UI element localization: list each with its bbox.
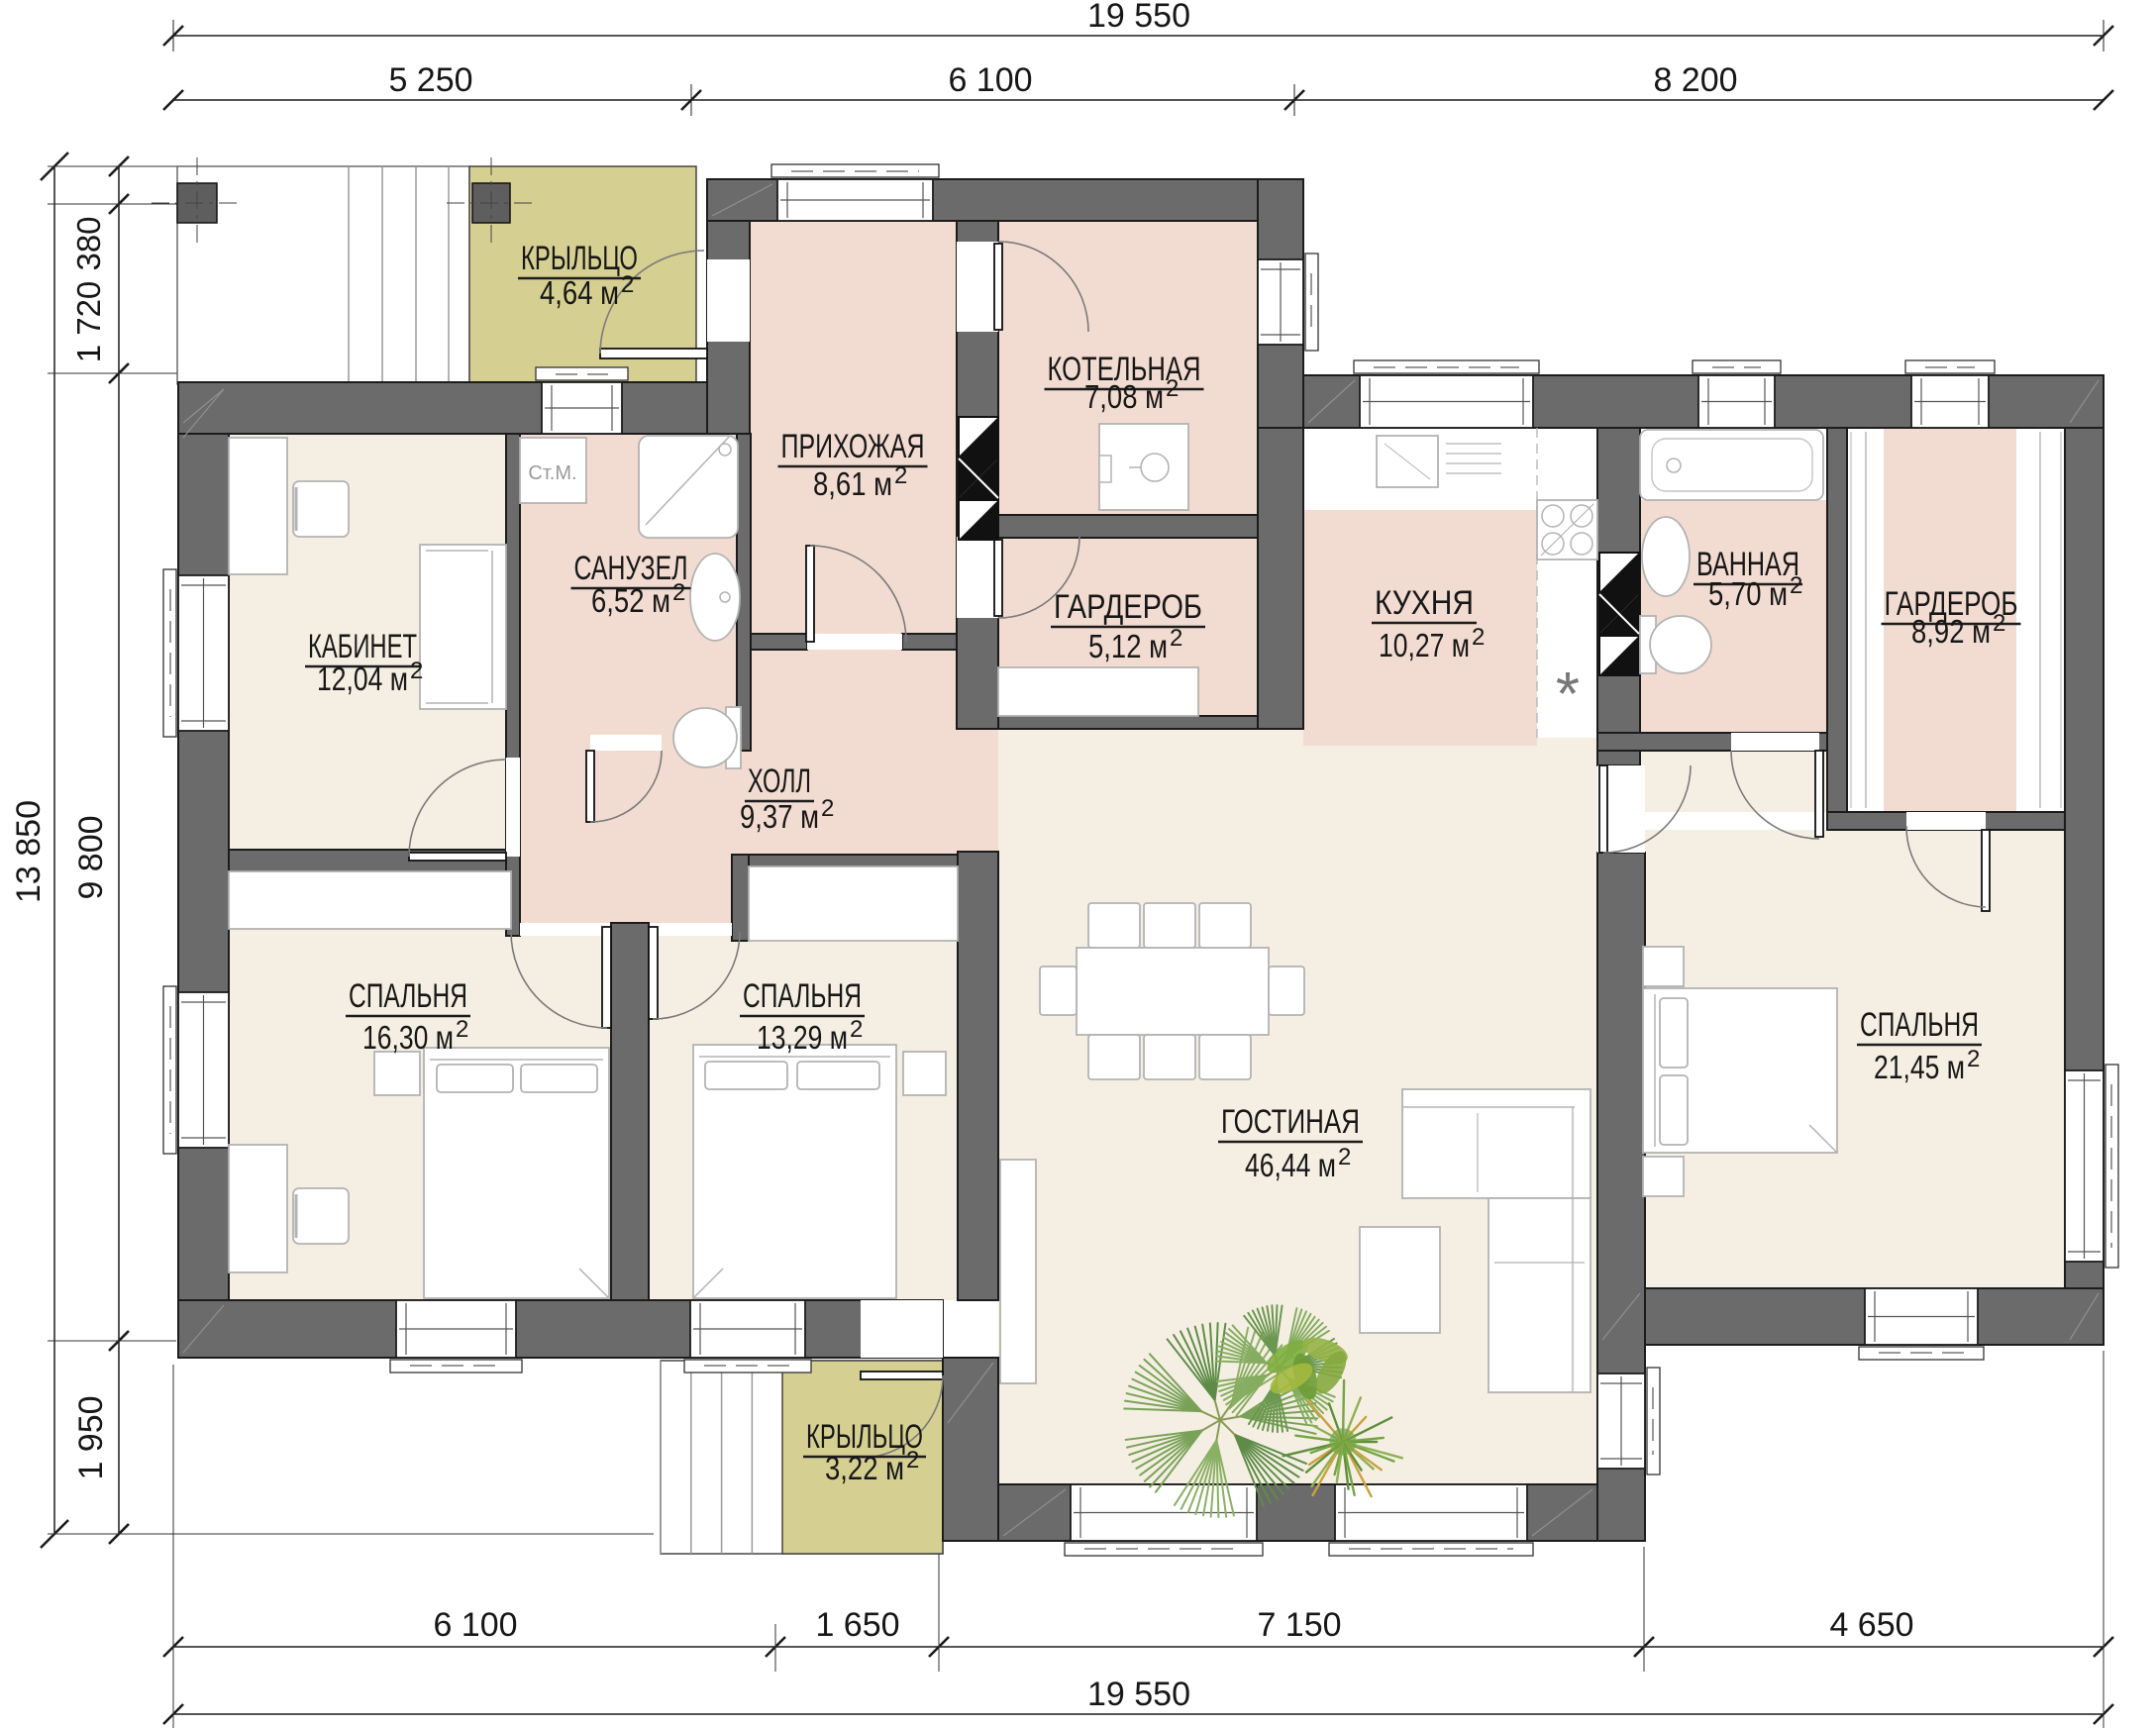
svg-text:13,29 м: 13,29 м: [757, 1019, 848, 1056]
svg-text:9,37 м: 9,37 м: [740, 798, 819, 835]
svg-text:46,44 м: 46,44 м: [1245, 1147, 1336, 1183]
svg-text:5,12 м: 5,12 м: [1088, 628, 1168, 664]
svg-text:13 850: 13 850: [10, 800, 48, 903]
svg-text:2: 2: [1170, 625, 1182, 652]
svg-text:6,52 м: 6,52 м: [591, 582, 670, 619]
svg-text:6 100: 6 100: [948, 61, 1032, 99]
svg-text:3,22 м: 3,22 м: [825, 1450, 904, 1486]
svg-text:*: *: [1556, 661, 1580, 729]
svg-text:2: 2: [1166, 375, 1179, 402]
svg-text:21,45 м: 21,45 м: [1874, 1049, 1965, 1085]
svg-text:2: 2: [906, 1447, 919, 1474]
svg-text:12,04 м: 12,04 м: [317, 661, 408, 697]
svg-text:9 800: 9 800: [72, 815, 110, 899]
svg-text:8 200: 8 200: [1653, 61, 1737, 99]
svg-text:КУХНЯ: КУХНЯ: [1375, 584, 1474, 622]
svg-text:1 950: 1 950: [72, 1395, 110, 1479]
svg-text:СПАЛЬНЯ: СПАЛЬНЯ: [1860, 1006, 1979, 1044]
svg-text:4,64 м: 4,64 м: [540, 274, 619, 311]
svg-text:2: 2: [621, 271, 634, 298]
svg-text:6 100: 6 100: [433, 1606, 517, 1644]
svg-text:ГАРДЕРОБ: ГАРДЕРОБ: [1054, 588, 1202, 626]
svg-text:10,27 м: 10,27 м: [1379, 627, 1470, 663]
svg-text:8,92 м: 8,92 м: [1911, 613, 1991, 650]
svg-text:5,70 м: 5,70 м: [1708, 575, 1788, 612]
svg-text:16,30 м: 16,30 м: [362, 1019, 454, 1056]
svg-text:СПАЛЬНЯ: СПАЛЬНЯ: [743, 977, 862, 1015]
svg-text:2: 2: [456, 1016, 468, 1043]
svg-text:2: 2: [1338, 1144, 1351, 1170]
svg-text:ХОЛЛ: ХОЛЛ: [748, 763, 811, 800]
svg-text:ПРИХОЖАЯ: ПРИХОЖАЯ: [781, 428, 925, 465]
svg-text:2: 2: [1790, 572, 1802, 599]
svg-text:1 650: 1 650: [815, 1606, 899, 1644]
svg-text:19 550: 19 550: [1087, 1676, 1190, 1713]
svg-text:2: 2: [821, 795, 834, 822]
svg-text:ГОСТИНАЯ: ГОСТИНАЯ: [1221, 1103, 1360, 1141]
svg-text:4 650: 4 650: [1829, 1606, 1913, 1644]
svg-text:19 550: 19 550: [1087, 0, 1190, 35]
svg-text:2: 2: [894, 462, 907, 489]
svg-text:7 150: 7 150: [1257, 1606, 1341, 1644]
svg-text:1 720: 1 720: [70, 281, 107, 363]
svg-text:380: 380: [70, 216, 107, 270]
svg-text:5 250: 5 250: [388, 61, 472, 99]
svg-text:2: 2: [1967, 1046, 1980, 1072]
svg-text:2: 2: [850, 1016, 863, 1043]
svg-text:8,61 м: 8,61 м: [813, 465, 892, 502]
svg-text:Ст.М.: Ст.М.: [528, 462, 576, 484]
svg-text:2: 2: [1993, 610, 2005, 637]
svg-text:2: 2: [672, 579, 685, 606]
svg-text:2: 2: [410, 658, 423, 684]
svg-text:7,08 м: 7,08 м: [1084, 378, 1164, 415]
svg-text:2: 2: [1472, 624, 1485, 651]
svg-text:СПАЛЬНЯ: СПАЛЬНЯ: [349, 977, 467, 1015]
